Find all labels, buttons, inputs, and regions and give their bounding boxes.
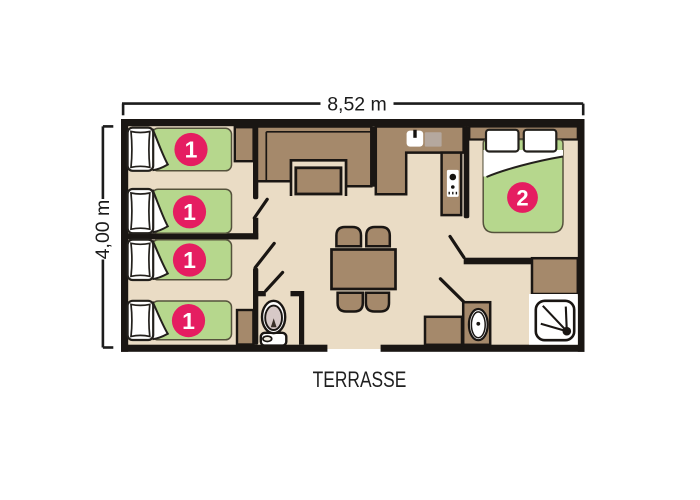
svg-text:1: 1 xyxy=(183,199,196,225)
svg-text:1: 1 xyxy=(183,247,196,273)
svg-text:1: 1 xyxy=(182,308,195,334)
svg-text:TERRASSE: TERRASSE xyxy=(313,368,407,393)
svg-text:1: 1 xyxy=(185,137,198,163)
svg-text:8,52 m: 8,52 m xyxy=(327,94,387,116)
svg-text:4,00 m: 4,00 m xyxy=(92,200,114,260)
svg-text:2: 2 xyxy=(516,186,528,211)
